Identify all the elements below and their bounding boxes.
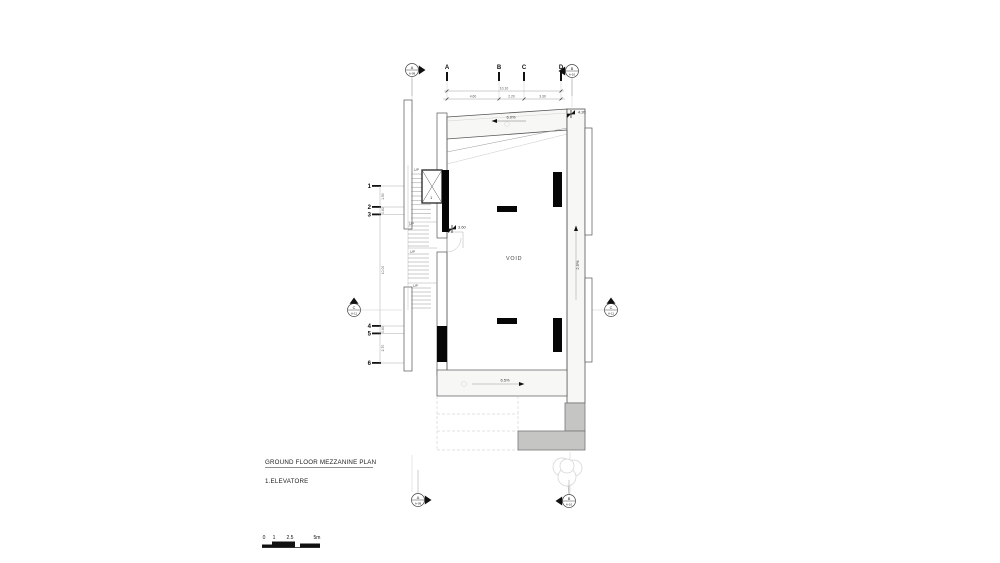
gray-step-vertical: [565, 403, 585, 431]
dim-left-seg-2: 0.60: [381, 207, 385, 214]
section-arrow-up: [350, 298, 359, 304]
dim-top-seg-2: 2.20: [508, 95, 515, 99]
scale-label-3: 5m: [314, 535, 321, 541]
section-marker-mid-right: C A-11: [605, 298, 618, 317]
grid-letter-a: A: [445, 65, 450, 71]
dim-top-seg-1: 4.60: [470, 95, 477, 99]
wall-right-outer-top: [585, 128, 592, 235]
grid-number-2: 2: [368, 205, 372, 211]
scale-label-0: 0: [263, 535, 266, 541]
top-dimension-chain: 10.10 4.60 2.20 3.30: [443, 87, 565, 101]
dim-top-seg-3: 3.30: [539, 95, 546, 99]
level-elevator: 3.60: [448, 225, 467, 234]
grid-number-3: 3: [368, 213, 372, 219]
grid-number-4: 4: [368, 324, 372, 330]
level-top-right-value: 4.20: [578, 110, 587, 115]
section-marker-mid-left: C A-11: [348, 298, 361, 317]
slope-top-label: 6.0%: [506, 115, 516, 120]
dim-left-seg-5: 2.70: [381, 345, 385, 352]
poche-right-upper: [553, 172, 562, 207]
plan-title: GROUND FLOOR MEZZANINE PLAN: [265, 459, 376, 466]
grid-letter-c: C: [522, 65, 527, 71]
exterior-gray-steps: [518, 403, 585, 450]
poche-elevator-wall: [442, 170, 449, 232]
marker-letter: C: [353, 306, 356, 310]
marker-letter: A: [417, 496, 420, 500]
grid-number-1: 1: [368, 184, 372, 190]
poche-walls: [437, 170, 562, 362]
scale-label-2: 2.5: [287, 535, 294, 541]
dashed-construction-lines: [437, 396, 518, 450]
door-swing-arc: [447, 238, 461, 252]
slope-right-label: 2.5%: [575, 260, 580, 270]
grid-letter-b: B: [497, 65, 502, 71]
tree-symbol: [553, 458, 582, 494]
grid-rows: 1 2 3 4 5 6 1.90 0.60 10.00 0.60 2.70: [368, 184, 404, 367]
row-ticks: [372, 185, 381, 364]
scale-segment-1: [262, 545, 272, 548]
plan-legend: 1.ELEVATORE: [265, 478, 308, 485]
scale-segment-3: [300, 544, 320, 548]
grid-number-5: 5: [368, 332, 372, 338]
title-block: GROUND FLOOR MEZZANINE PLAN 1.ELEVATORE: [265, 459, 376, 485]
ramp-band-top: [447, 109, 567, 139]
up-label-1: UP: [414, 168, 420, 172]
floor-plan-sheet: A B C D 10.10 4.60 2.20 3.30 1: [0, 0, 1000, 563]
section-marker-bottom-left: A A-09: [412, 470, 432, 507]
marker-letter: B: [568, 497, 571, 501]
marker-sheet: A-10: [566, 503, 573, 507]
marker-letter: A: [411, 66, 414, 70]
up-label-3: UP: [410, 250, 416, 254]
poche-right-lower: [553, 318, 562, 352]
scale-label-1: 1: [273, 535, 276, 541]
marker-sheet: A-09: [409, 72, 416, 76]
marker-letter: B: [571, 67, 574, 71]
up-label-2: UP: [409, 222, 415, 226]
marker-sheet: A-10: [569, 73, 576, 77]
marker-sheet: A-09: [415, 502, 422, 506]
grid-tick-a: [446, 72, 448, 81]
plan-drawing: A B C D 10.10 4.60 2.20 3.30 1: [0, 0, 1000, 563]
wall-right-outer-bottom: [585, 278, 592, 362]
dim-left-seg-3: 10.00: [381, 266, 385, 275]
dim-left-seg-4: 0.60: [381, 326, 385, 333]
marker-letter: C: [610, 306, 613, 310]
marker-sheet: A-11: [608, 312, 614, 316]
slope-bottom-label: 6.5%: [500, 378, 510, 383]
grid-tick-d: [560, 72, 562, 81]
marker-sheet: A-11: [351, 312, 357, 316]
level-elevator-value: 3.60: [458, 225, 467, 230]
grid-tick-b: [498, 72, 500, 81]
grid-tick-c: [523, 72, 525, 81]
ramp-band-bottom: [437, 370, 567, 396]
plan-walls: [404, 100, 592, 403]
gray-step-horizontal: [518, 431, 585, 450]
void-label: VOID: [506, 256, 522, 262]
poche-center-upper: [497, 206, 517, 212]
elevator: 1: [422, 170, 442, 203]
dim-left-seg-1: 1.90: [381, 193, 385, 200]
grid-number-6: 6: [368, 361, 372, 367]
section-arrow-right: [419, 66, 426, 75]
section-arrow-right: [425, 496, 432, 505]
scale-segment-2: [272, 542, 295, 548]
section-marker-top-left: A A-09: [406, 64, 426, 97]
poche-left-lower: [437, 326, 447, 362]
dim-top-total: 10.10: [500, 87, 509, 91]
section-arrow-up: [607, 298, 616, 304]
section-arrow-left: [556, 497, 563, 506]
grid-columns: A B C D: [445, 65, 564, 100]
scale-bar: 0 1 2.5 5m: [262, 535, 320, 548]
up-label-4: UP: [413, 284, 419, 288]
poche-center-lower: [497, 318, 517, 324]
